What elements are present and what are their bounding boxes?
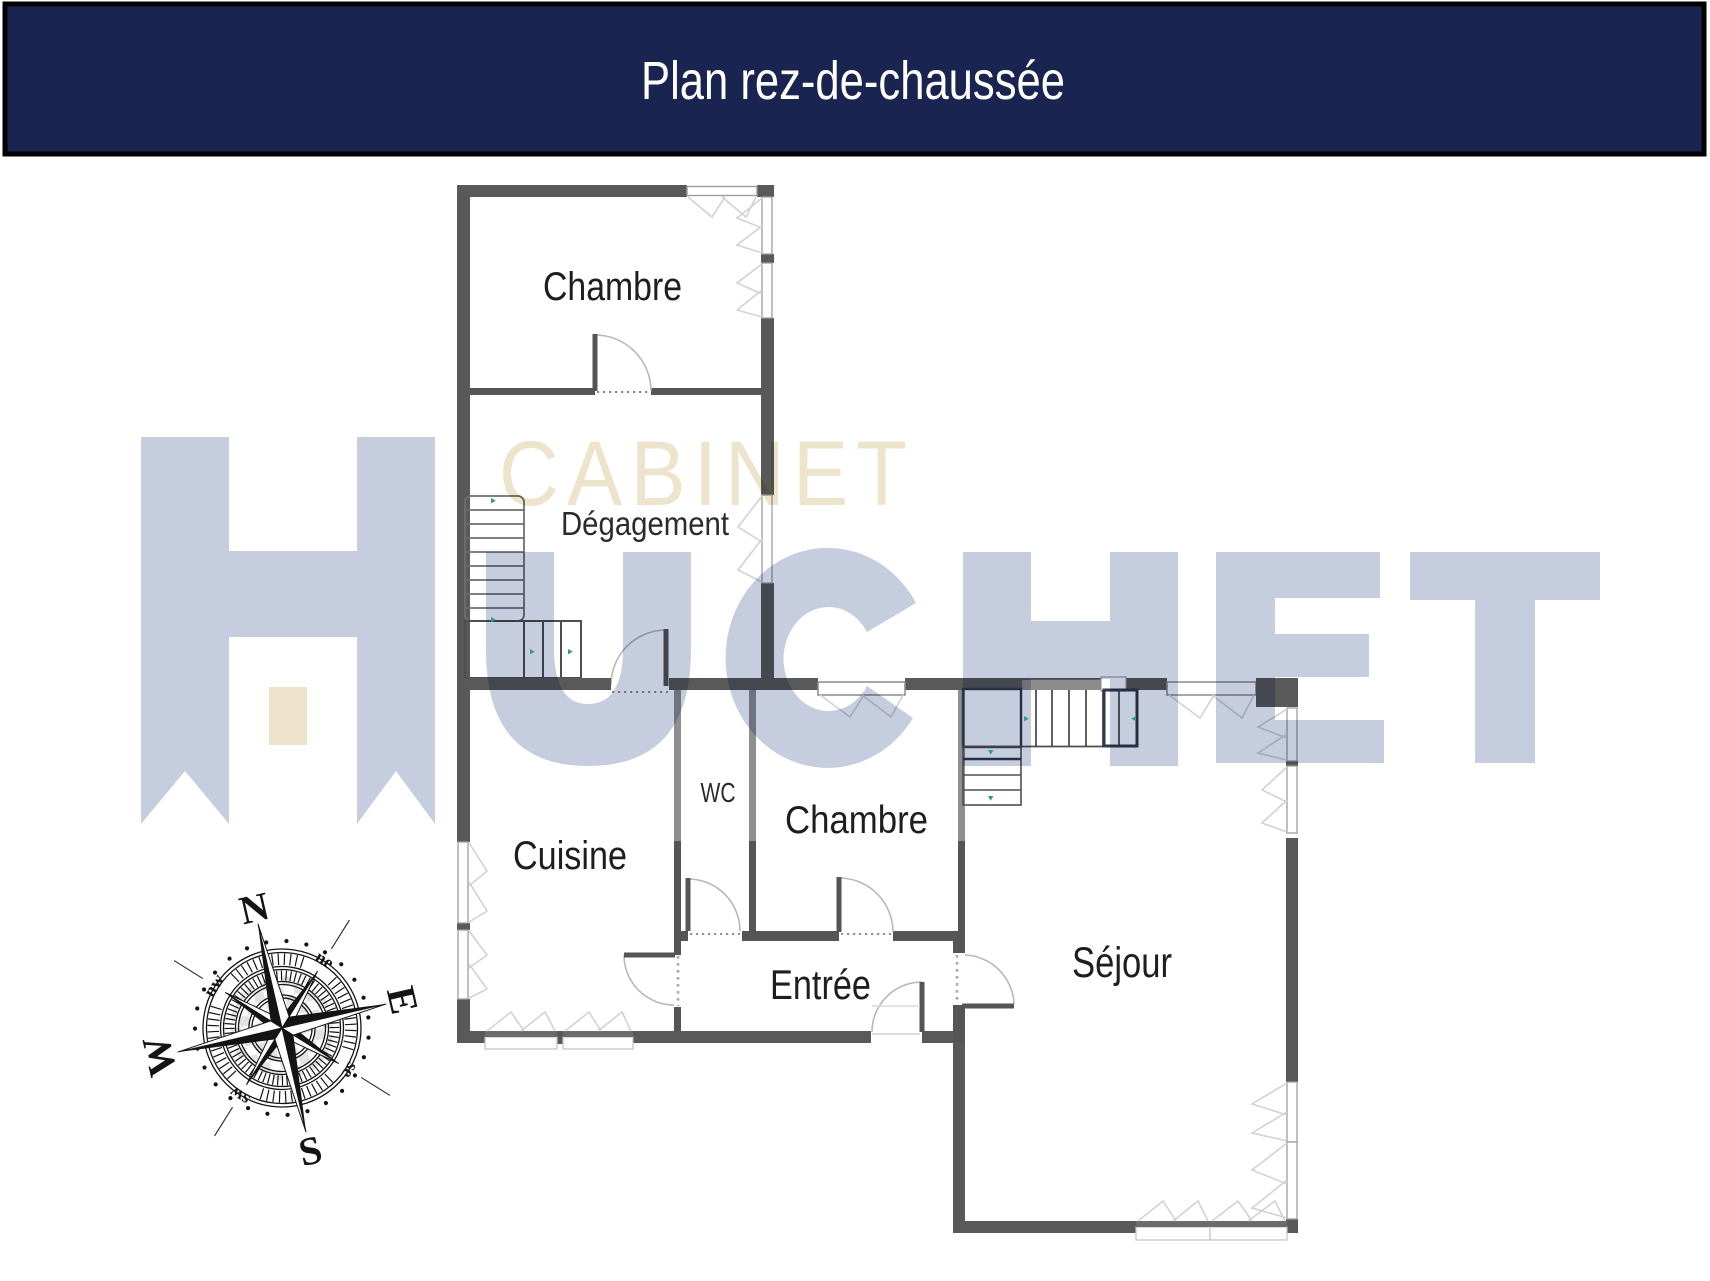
svg-text:Dégagement: Dégagement (561, 505, 729, 542)
svg-text:Cuisine: Cuisine (513, 834, 627, 878)
svg-text:Entrée: Entrée (770, 961, 871, 1008)
svg-text:Chambre: Chambre (785, 799, 928, 842)
svg-text:Plan rez-de-chaussée: Plan rez-de-chaussée (641, 51, 1065, 111)
svg-text:Chambre: Chambre (543, 265, 682, 309)
svg-text:Séjour: Séjour (1072, 939, 1172, 987)
svg-text:WC: WC (701, 777, 736, 808)
